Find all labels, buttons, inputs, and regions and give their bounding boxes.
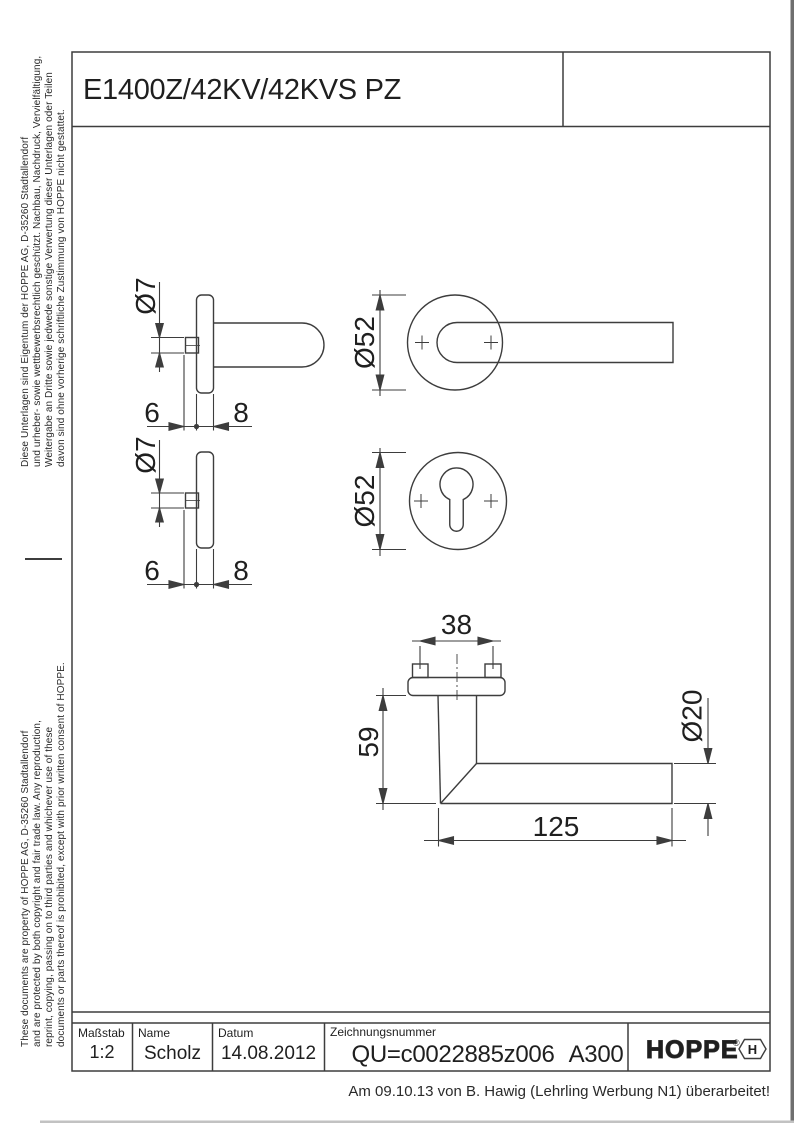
lever-outline <box>437 323 673 363</box>
dim-label-rose-dia: Ø52 <box>349 316 380 369</box>
arrowhead <box>376 295 384 310</box>
arrowhead <box>379 696 387 711</box>
dim-label-6: 6 <box>144 555 160 586</box>
dim-label-6: 6 <box>144 397 160 428</box>
dim-label-spindle-dia: Ø7 <box>130 277 161 314</box>
scan-edge-right <box>791 0 794 1123</box>
scale-value: 1:2 <box>72 1042 132 1063</box>
drawing-number-label: Zeichnungsnummer <box>330 1025 436 1039</box>
arrowhead <box>379 789 387 804</box>
arrowhead <box>214 581 229 589</box>
dimension-dot <box>194 582 199 587</box>
arrowhead <box>156 479 164 493</box>
neck-left-edge <box>438 696 441 804</box>
arrowhead <box>704 804 712 819</box>
arrowhead <box>156 353 164 367</box>
dim-label-8: 8 <box>233 555 249 586</box>
arrowhead <box>439 837 454 845</box>
drawing-sheet: Diese Unterlagen sind Eigentum der HOPPE… <box>0 0 794 1123</box>
sheet-frame <box>25 52 770 1071</box>
elbow-miter-line <box>441 764 477 804</box>
view-key-side: Ø7 6 8 <box>130 436 252 588</box>
hoppe-logo: HOPPE ® H <box>646 1036 766 1064</box>
arrowhead <box>169 423 184 431</box>
dim-label-spindle-dia: Ø7 <box>130 436 161 473</box>
rose-plate <box>408 678 505 696</box>
arrowhead <box>657 837 672 845</box>
view-key-front: Ø52 <box>349 448 507 556</box>
dimension-dot <box>194 424 199 429</box>
arrowhead <box>156 324 164 338</box>
registered-trademark-icon: ® <box>733 1038 740 1048</box>
dim-label-grip-dia: Ø20 <box>677 690 708 743</box>
dim-label-8: 8 <box>233 397 249 428</box>
scale-label: Maßstab <box>78 1026 125 1040</box>
view-handle-front: Ø52 <box>349 290 673 396</box>
name-value: Scholz <box>132 1043 213 1065</box>
dim-59 <box>376 688 436 810</box>
arrowhead <box>376 375 384 390</box>
screw-cross-marks <box>414 494 498 508</box>
arrowhead <box>376 535 384 550</box>
drawing-number-value: QU=c0022885z006 <box>333 1041 573 1069</box>
date-label: Datum <box>218 1026 253 1040</box>
arrowhead <box>704 749 712 764</box>
arrowhead <box>478 637 493 645</box>
revision-code: A300 <box>566 1041 626 1069</box>
drawing-title: E1400Z/42KV/42KVS PZ <box>83 74 401 107</box>
arrowhead <box>420 637 435 645</box>
arrowhead <box>376 453 384 468</box>
screw-cross-marks <box>415 336 498 350</box>
frame-border <box>72 52 770 1071</box>
drawing-canvas: Ø7 6 8 Ø52 <box>0 0 794 1123</box>
handle-grip-profile <box>213 323 324 367</box>
pz-keyhole <box>440 468 473 531</box>
arrowhead <box>214 423 229 431</box>
arrowhead <box>156 508 164 522</box>
hexagon-letter: H <box>748 1042 757 1057</box>
view-handle-side: Ø7 6 8 <box>130 277 324 430</box>
hoppe-logo-text: HOPPE <box>646 1036 739 1064</box>
dim-label-59: 59 <box>353 726 384 757</box>
revision-note: Am 09.10.13 von B. Hawig (Lehrling Werbu… <box>0 1083 770 1100</box>
grip-outline <box>441 764 673 804</box>
dim-label-38: 38 <box>441 609 472 640</box>
arrowhead <box>169 581 184 589</box>
view-plan: 38 59 Ø20 125 <box>353 609 716 847</box>
date-value: 14.08.2012 <box>212 1043 325 1065</box>
name-label: Name <box>138 1026 170 1040</box>
dim-label-rose-dia: Ø52 <box>349 475 380 528</box>
dim-label-125: 125 <box>533 811 580 842</box>
